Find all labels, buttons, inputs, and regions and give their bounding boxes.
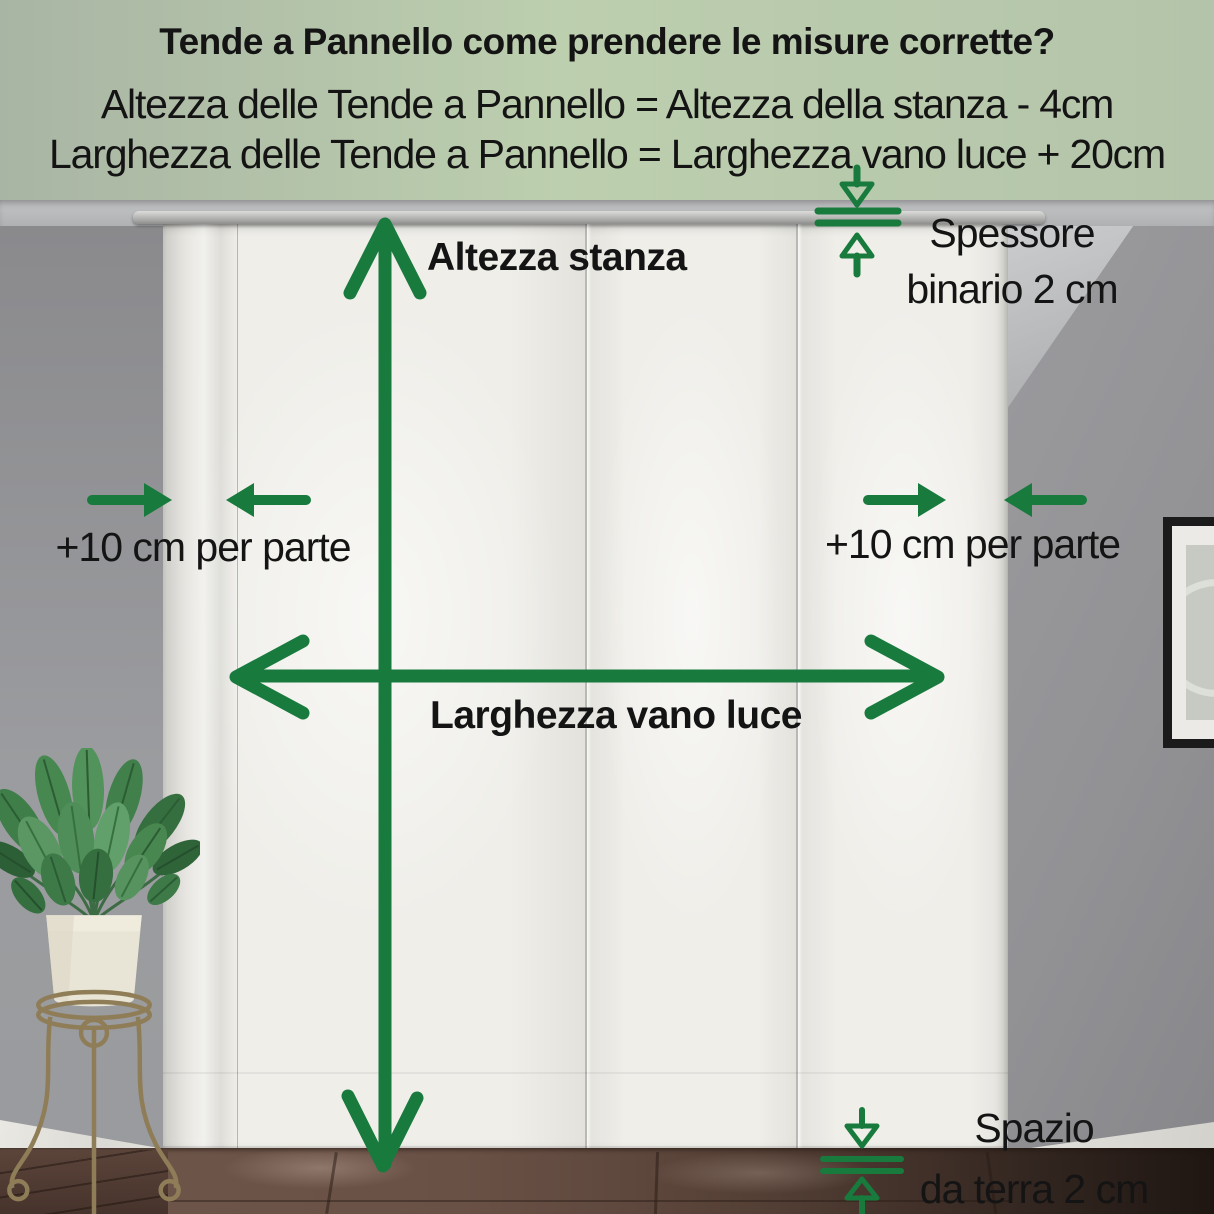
width-formula-text: Larghezza delle Tende a Pannello = Largh… xyxy=(0,131,1214,178)
picture-mat xyxy=(1172,526,1214,739)
potted-plant xyxy=(0,748,200,1214)
header-banner: Tende a Pannello come prendere le misure… xyxy=(0,0,1214,200)
measurement-infographic: Tende a Pannello come prendere le misure… xyxy=(0,0,1214,1214)
floor-gap-label: Spazio da terra 2 cm xyxy=(900,1098,1168,1214)
side-allowance-label-right: +10 cm per parte xyxy=(800,521,1145,568)
framed-picture xyxy=(1163,517,1214,748)
floor-gap-label-line1: Spazio xyxy=(900,1098,1168,1159)
picture-art xyxy=(1186,545,1214,720)
track-thickness-label-line2: binario 2 cm xyxy=(880,261,1144,317)
room-height-label: Altezza stanza xyxy=(427,236,687,280)
circle-artwork xyxy=(1186,579,1214,697)
floor-gap-label-line2: da terra 2 cm xyxy=(900,1159,1168,1214)
curtain-hem-line xyxy=(163,1072,1008,1074)
panel-curtains xyxy=(163,224,1008,1156)
opening-width-label: Larghezza vano luce xyxy=(430,694,802,738)
curtain-panel xyxy=(585,224,796,1156)
side-allowance-label-left: +10 cm per parte xyxy=(18,524,388,571)
plant-leaves xyxy=(0,748,200,920)
page-title: Tende a Pannello come prendere le misure… xyxy=(0,21,1214,63)
track-thickness-label-line1: Spessore xyxy=(880,205,1144,261)
height-formula-text: Altezza delle Tende a Pannello = Altezza… xyxy=(0,81,1214,128)
track-thickness-label: Spessore binario 2 cm xyxy=(880,205,1144,317)
curtain-panel xyxy=(796,224,1008,1156)
floor-tile-grout xyxy=(170,1200,1010,1202)
plant-stand xyxy=(9,992,178,1214)
